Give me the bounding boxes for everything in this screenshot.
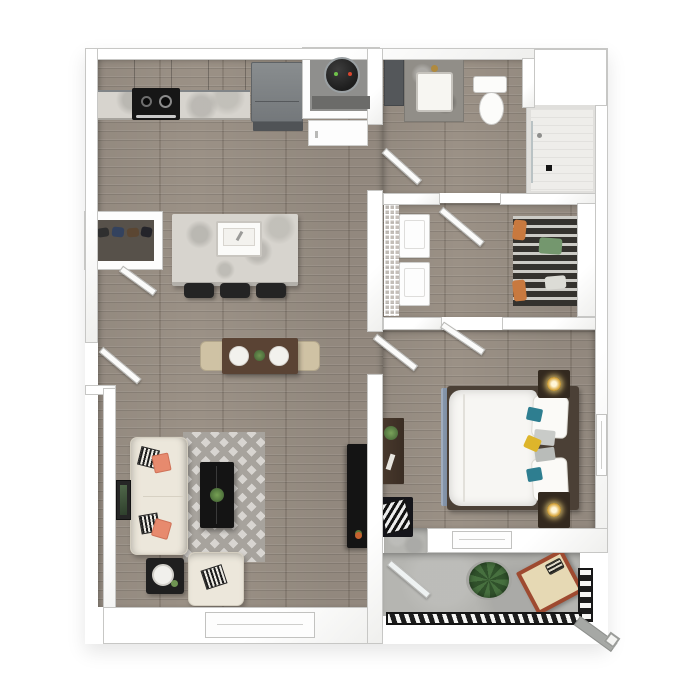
wall-left-upper xyxy=(85,48,98,343)
wall-top xyxy=(85,48,535,60)
coffee-table-plant xyxy=(210,488,224,502)
bedroom-bench xyxy=(379,497,413,537)
wall-bathroom-south-left xyxy=(383,193,440,205)
balcony-railing-front xyxy=(386,612,582,625)
plate xyxy=(269,346,289,366)
clothes-white xyxy=(544,275,566,290)
table-lamp xyxy=(547,503,561,517)
plate xyxy=(229,346,249,366)
hanging-clothes xyxy=(513,216,577,306)
table-lamp xyxy=(547,377,561,391)
side-table xyxy=(146,558,184,594)
wall-art-canvas xyxy=(120,485,127,515)
wall-divider-upper xyxy=(367,48,383,125)
console-decor xyxy=(355,532,362,539)
coral-throw-pillow xyxy=(151,452,171,473)
toilet-bowl xyxy=(479,92,504,125)
clothes-orange xyxy=(512,219,527,240)
stove-burner xyxy=(141,96,152,107)
water-heater-indicator-green xyxy=(334,72,338,76)
table-centerpiece-plant xyxy=(254,350,265,361)
hall-cabinet xyxy=(308,120,368,146)
stove xyxy=(132,88,180,120)
nightstand xyxy=(538,492,570,528)
chevron-pillow xyxy=(379,498,413,535)
bathroom-linen-cabinet xyxy=(384,58,404,106)
kitchen-upper-cabinets xyxy=(98,58,250,92)
cabinet-base xyxy=(253,121,303,131)
washer-lid xyxy=(404,220,425,249)
vanity-sink-basin xyxy=(416,72,453,112)
shower-glass-door xyxy=(531,121,533,183)
dryer xyxy=(399,262,430,306)
washer xyxy=(399,214,430,258)
bed-mattress xyxy=(449,390,537,506)
teal-accent-pillow xyxy=(526,407,543,423)
bedroom-east-window xyxy=(596,414,607,476)
sofa xyxy=(130,437,188,555)
striped-throw-pillow xyxy=(200,564,227,590)
wall-right xyxy=(595,105,608,553)
sofa-cushion-split xyxy=(143,496,183,497)
dining-table xyxy=(222,338,298,374)
water-heater xyxy=(324,57,360,93)
shoes xyxy=(96,227,109,238)
shower-drain xyxy=(546,165,552,171)
bar-stool xyxy=(256,283,286,298)
clothes-orange xyxy=(512,279,527,301)
wall-bathroom-east xyxy=(522,58,535,108)
oven-handle xyxy=(136,115,176,118)
lounge-chair-pillow xyxy=(545,558,565,576)
stove-burner xyxy=(159,95,172,108)
dryer-lid xyxy=(404,268,425,297)
bar-stool xyxy=(184,283,214,298)
refrigerator-door-split xyxy=(255,101,299,102)
island-sink xyxy=(216,221,262,257)
side-table-plant xyxy=(171,580,178,587)
wall-divider-middle xyxy=(367,190,383,332)
armchair xyxy=(188,552,244,606)
desk-papers xyxy=(386,454,396,471)
coffee-table xyxy=(200,462,234,528)
wall-art-frame xyxy=(116,480,131,520)
shoes xyxy=(127,227,140,237)
floor-plan-canvas xyxy=(0,0,697,697)
wall-notch-top-right xyxy=(535,48,608,105)
water-heater-indicator-red xyxy=(348,72,352,76)
refrigerator xyxy=(251,62,303,122)
shower-head xyxy=(537,133,542,138)
wall-left-lower xyxy=(103,388,116,644)
balcony-potted-plant xyxy=(469,562,509,598)
wall-closet-east xyxy=(577,203,597,317)
teal-accent-pillow xyxy=(526,467,543,482)
duvet-fold xyxy=(463,394,465,502)
walk-in-shower xyxy=(527,105,597,195)
toilet-tank xyxy=(473,76,507,93)
wall-closet-south-left xyxy=(383,317,442,330)
water-heater-shelf xyxy=(312,96,370,109)
bedroom-south-window xyxy=(452,531,512,549)
shoes xyxy=(140,226,153,238)
bathroom-vanity xyxy=(404,58,464,122)
living-room-window xyxy=(205,612,315,638)
nightstand xyxy=(538,370,570,398)
hall-cabinet-handle xyxy=(315,131,318,138)
vanity-faucet xyxy=(431,65,438,72)
bar-stool xyxy=(220,283,250,298)
wall-divider-lower xyxy=(367,374,383,644)
shoes xyxy=(112,226,125,237)
desk-plant xyxy=(384,426,398,440)
wire-shelving xyxy=(384,204,399,316)
wall-closet-south-right xyxy=(502,317,597,330)
clothes-green xyxy=(538,237,562,255)
coral-throw-pillow xyxy=(151,518,172,540)
